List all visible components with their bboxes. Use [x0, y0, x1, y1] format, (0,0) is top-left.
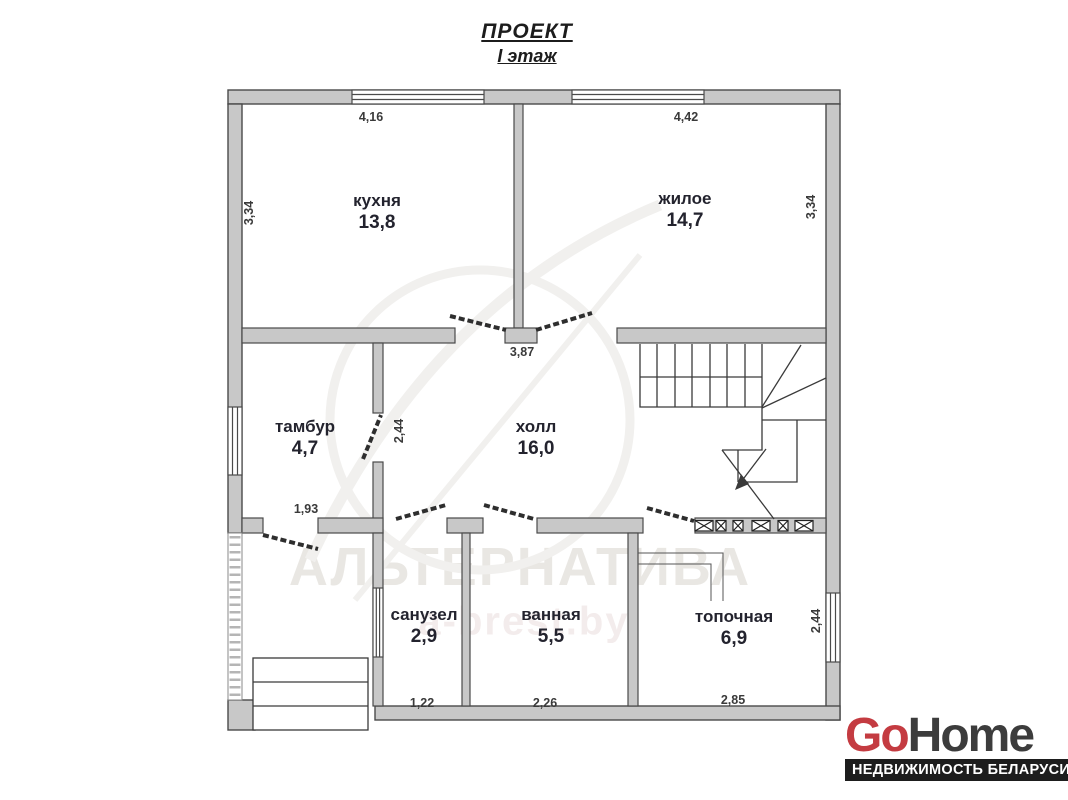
- gohome-logo-text: GoHome: [845, 714, 1068, 758]
- room-name-wc: санузел: [390, 604, 457, 625]
- floor-plan-drawing: [0, 0, 1068, 800]
- drawing-title: ПРОЕКТ I этаж: [481, 20, 572, 67]
- room-area-vestibule: 4,7: [275, 437, 335, 460]
- gohome-logo-go: Go: [845, 709, 908, 762]
- room-label-hall: холл 16,0: [516, 416, 557, 460]
- dim-vestibule-width: 1,93: [294, 502, 318, 516]
- vent-flue-symbols: [695, 521, 813, 532]
- room-name-bath: ванная: [521, 604, 581, 625]
- room-label-vestibule: тамбур 4,7: [275, 416, 335, 460]
- room-name-living: жилое: [659, 188, 712, 209]
- room-label-living: жилое 14,7: [659, 188, 712, 232]
- staircase: [640, 344, 826, 519]
- gohome-logo-home: Home: [908, 709, 1033, 762]
- dim-vestibule-door-depth: 2,44: [392, 419, 406, 443]
- room-area-bath: 5,5: [521, 625, 581, 648]
- title-project: ПРОЕКТ: [481, 20, 572, 44]
- gohome-logo-tagline: НЕДВИЖИМОСТЬ БЕЛАРУСИ: [845, 759, 1068, 781]
- dim-kitchen-width: 4,16: [359, 110, 383, 124]
- flue-chase-outline: [638, 553, 723, 601]
- room-name-hall: холл: [516, 416, 557, 437]
- room-area-hall: 16,0: [516, 437, 557, 460]
- room-name-boiler: топочная: [695, 606, 773, 627]
- room-label-boiler: топочная 6,9: [695, 606, 773, 650]
- dim-kitchen-depth: 3,34: [242, 201, 256, 225]
- room-name-vestibule: тамбур: [275, 416, 335, 437]
- floor-plan-page: АЛЬТЕРНАТИВА a-brest.by: [0, 0, 1068, 800]
- room-label-bath: ванная 5,5: [521, 604, 581, 648]
- dim-boiler-width: 2,85: [721, 693, 745, 707]
- dim-hall-width: 3,87: [510, 345, 534, 359]
- room-name-kitchen: кухня: [353, 190, 401, 211]
- room-area-kitchen: 13,8: [353, 211, 401, 234]
- room-area-boiler: 6,9: [695, 627, 773, 650]
- watermark-swirl: [310, 205, 660, 600]
- dim-bath-width: 2,26: [533, 696, 557, 710]
- room-label-wc: санузел 2,9: [390, 604, 457, 648]
- dim-wc-width: 1,22: [410, 696, 434, 710]
- dim-boiler-depth: 2,44: [809, 609, 823, 633]
- gohome-logo: GoHome НЕДВИЖИМОСТЬ БЕЛАРУСИ: [845, 714, 1068, 781]
- dim-living-depth: 3,34: [804, 195, 818, 219]
- room-area-living: 14,7: [659, 209, 712, 232]
- room-label-kitchen: кухня 13,8: [353, 190, 401, 234]
- title-floor: I этаж: [481, 46, 572, 67]
- room-area-wc: 2,9: [390, 625, 457, 648]
- windows: [228, 90, 840, 662]
- dim-living-width: 4,42: [674, 110, 698, 124]
